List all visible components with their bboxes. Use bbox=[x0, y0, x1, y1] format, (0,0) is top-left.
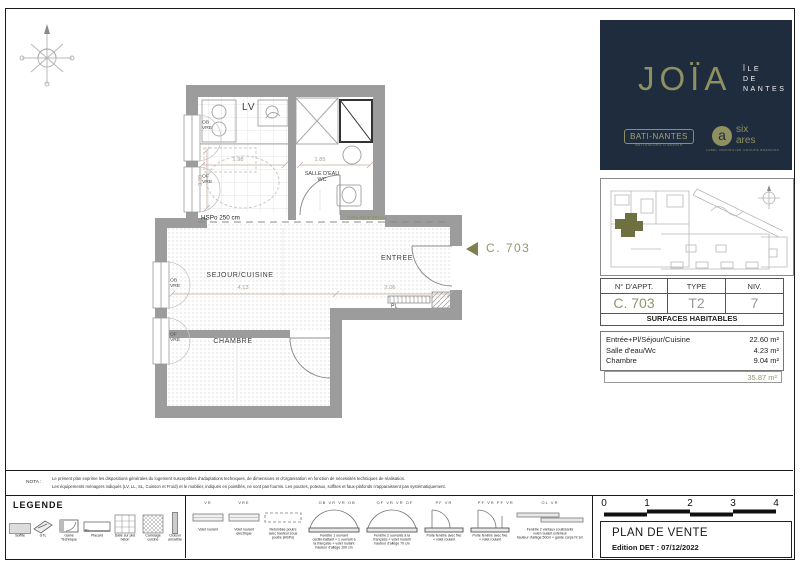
legend-item-carrelage: Carrelagecuisine bbox=[140, 514, 166, 550]
sheet-title: PLAN DE VENTE bbox=[612, 527, 708, 539]
surface-row: Chambre9.04 m² bbox=[606, 356, 779, 367]
coulissant-icon bbox=[514, 506, 586, 528]
surface-row: Salle d'eau/Wc4.23 m² bbox=[606, 346, 779, 357]
label-hspo: HSPo 250 cm bbox=[201, 214, 240, 221]
nota-label: NOTA : bbox=[26, 479, 41, 484]
title-block: PLAN DE VENTE Edition DET : 07/12/2022 bbox=[600, 521, 792, 558]
legend-symbol-fenetre-of: OF VR VR OF Fenêtre 2 ouvrants à lafranç… bbox=[364, 501, 420, 558]
window-label-3: OBVRE bbox=[170, 277, 180, 288]
gtl-icon bbox=[32, 514, 54, 534]
legend-item-cloison: Cloisonamovible bbox=[168, 514, 182, 550]
closet-shelf bbox=[388, 296, 430, 303]
legend-symbol-coulissant: OL VR Fenêtre 2 vantaux coulissantsvolet… bbox=[514, 501, 586, 552]
surface-row: Entrée+Pl/Séjour/Cuisine22.60 m² bbox=[606, 335, 779, 346]
window-label-1: OBVRE bbox=[202, 119, 212, 130]
legend-item-gtl: GTL bbox=[32, 514, 54, 542]
legend-symbol-porte-fenetre-1: PF VR Porte fenêtre avec fixe+ volet rou… bbox=[422, 501, 466, 550]
joia-logo-panel: JOÏA ÎLEDENANTES BATI-NANTES BÂTISSEURS … bbox=[600, 20, 792, 170]
legend-symbol-poutre: Retombée poutreavec hauteur souspoutre (… bbox=[262, 501, 304, 552]
gaine-technique-icon bbox=[56, 514, 82, 534]
key-plan-drawing bbox=[601, 179, 791, 273]
label-pl: PL bbox=[391, 303, 397, 309]
legend-symbol-porte-fenetre-2: PF VR PF VR Porte fenêtre avec fixe+ vol… bbox=[468, 501, 512, 550]
legend-item-gaine-technique: GaineTechnique bbox=[56, 514, 82, 550]
scale-bar bbox=[600, 508, 790, 518]
fenetre-of-icon bbox=[364, 506, 420, 534]
label-lv: LV bbox=[242, 102, 256, 113]
ile-de-nantes-label: ÎLEDENANTES bbox=[743, 65, 786, 95]
vr-icon bbox=[190, 506, 226, 528]
porte-fenetre-2-icon bbox=[468, 506, 512, 534]
legend-item-placard: PL Placard bbox=[82, 514, 112, 542]
surfaces-table: Entrée+Pl/Séjour/Cuisine22.60 m² Salle d… bbox=[600, 331, 784, 371]
apartment-table-values: C. 703 T2 7 bbox=[600, 293, 784, 314]
key-plan-apartment-highlight bbox=[615, 213, 643, 237]
window-label-2: OFVRE bbox=[202, 173, 212, 184]
header-niv: NIV. bbox=[725, 278, 784, 294]
dim-4-13: 4.13 bbox=[229, 284, 258, 290]
dim-1-85: 1.85 bbox=[306, 156, 335, 162]
nota-text: Le présent plan exprime les dispositions… bbox=[52, 476, 800, 494]
legend-symbol-fenetre-ob: OB VR VR OB Fenêtre 1 ouvrantoscillo-bat… bbox=[306, 501, 362, 566]
label-salle-eau: SALLE D'EAU WC bbox=[292, 170, 352, 182]
label-sejour: SEJOUR/CUISINE bbox=[185, 272, 295, 279]
porte-fenetre-icon bbox=[422, 506, 466, 534]
plan-sheet: LV SALLE D'EAU WC SEJOUR/CUISINE ENTREE … bbox=[0, 0, 800, 565]
legend-symbol-vre: VRE Volet roulantélectrique bbox=[226, 501, 262, 544]
surfaces-total: 35.87 m² bbox=[604, 371, 782, 383]
window-label-4: OFVRE bbox=[170, 331, 180, 342]
cloison-icon bbox=[168, 514, 182, 534]
chambre-floor bbox=[167, 338, 330, 406]
legend-symbol-vr: VR Volet roulant bbox=[190, 501, 226, 536]
vre-icon bbox=[226, 506, 262, 528]
legend-item-dalle: Dalle sur plotbéton bbox=[112, 514, 138, 550]
label-coffre: Coffre HSFP 230 cm bbox=[347, 216, 386, 220]
label-entree: ENTREE bbox=[375, 255, 419, 262]
kitchen-floor bbox=[198, 97, 288, 212]
apartment-table-header: N° D'APPT. TYPE NIV. bbox=[600, 278, 784, 294]
surfaces-title: SURFACES HABITABLES bbox=[600, 313, 784, 326]
key-plan bbox=[600, 178, 794, 276]
apartment-type: T2 bbox=[667, 293, 725, 314]
header-num: N° D'APPT. bbox=[600, 278, 667, 294]
bati-nantes-logo: BATI-NANTES BÂTISSEURS D'AVENIR bbox=[620, 126, 698, 150]
poutre-icon bbox=[262, 506, 304, 528]
label-chambre: CHAMBRE bbox=[198, 338, 268, 345]
apartment-level: 7 bbox=[725, 293, 784, 314]
sejour-floor-lower bbox=[167, 300, 330, 332]
apartment-marker-label: C. 703 bbox=[486, 241, 530, 255]
dim-2-06: 2.06 bbox=[376, 284, 405, 290]
apartment-arrow-icon bbox=[466, 242, 478, 256]
soffite-icon bbox=[8, 514, 32, 534]
dalle-icon bbox=[112, 514, 138, 534]
edition-date: Edition DET : 07/12/2022 bbox=[612, 543, 699, 552]
joia-logo: JOÏA bbox=[638, 60, 731, 98]
fenetre-ob-icon bbox=[306, 506, 362, 534]
legend-title: LEGENDE bbox=[13, 500, 64, 510]
apartment-number: C. 703 bbox=[600, 293, 667, 314]
carrelage-icon bbox=[140, 514, 166, 534]
placard-icon: PL bbox=[82, 514, 112, 534]
dim-1-98: 1.98 bbox=[224, 156, 253, 162]
header-type: TYPE bbox=[667, 278, 725, 294]
legend-item-soffite: Soffite bbox=[8, 514, 32, 542]
